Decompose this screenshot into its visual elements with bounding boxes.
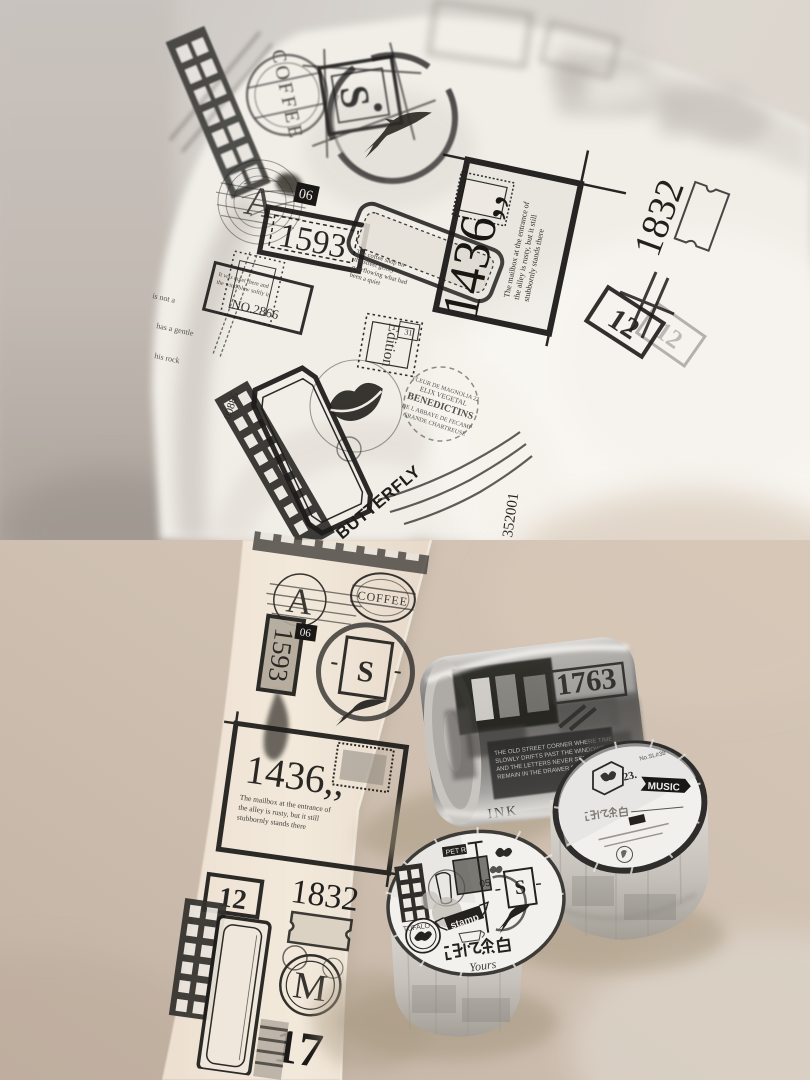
svg-text:06: 06 <box>299 626 312 639</box>
svg-text:31: 31 <box>404 327 413 337</box>
svg-text:MUSIC: MUSIC <box>647 781 680 794</box>
